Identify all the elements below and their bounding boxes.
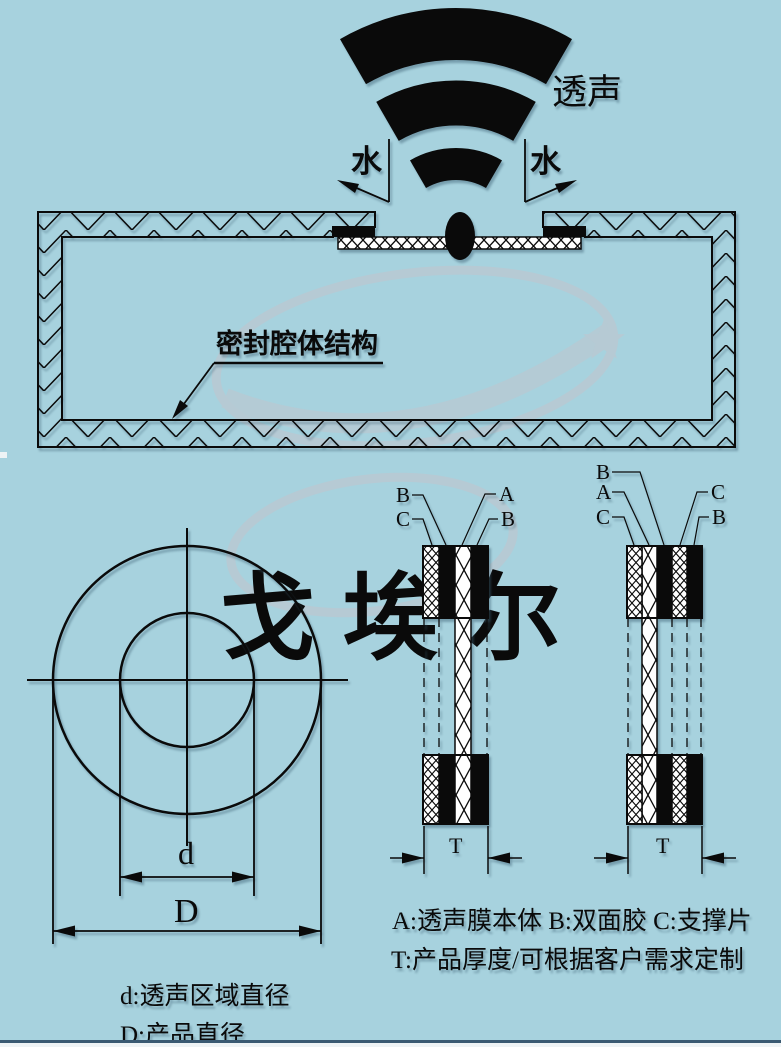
stack2-label-A-left: A [596,480,612,504]
product-diagram-page: 戈 埃 尔 透声 水 水 [0,0,781,1047]
stack2-bottom-adhesive-r [687,755,702,824]
sound-arc-inner [418,164,494,174]
water-annotation-right: 水 [525,139,577,202]
water-annotation-left: 水 [337,139,389,202]
layer-stack-1: B C A B T [390,482,522,874]
stack2-thickness-label: T [656,833,670,858]
stack1-top-adhesive-l [439,546,455,618]
water-label-left: 水 [351,144,383,179]
stack1-bottom-adhesive-l [439,755,455,824]
desc-acoustic-diameter: d:透声区域直径 [120,982,289,1010]
left-edge-tick [0,452,7,458]
dim-label-D: D [174,893,199,930]
cavity-label: 密封腔体结构 [216,328,378,359]
layer-stack-2: B A C C B T [594,460,736,874]
stack1-bottom-adhesive-r [471,755,488,824]
adhesive-pad-right [543,227,585,237]
legend-thickness-line: T:产品厚度/可根据客户需求定制 [391,946,744,974]
stack2-top-adhesive-r [687,546,702,618]
water-arrowhead-left [337,180,359,193]
stack1-thickness-label: T [449,833,463,858]
stack1-label-A-right: A [499,482,515,506]
sound-wave-icon [353,34,559,174]
page-bottom-strip [0,1043,781,1047]
page-bottom-divider [0,1040,781,1043]
stack1-label-B-left: B [396,483,410,507]
stack1-top-adhesive-r [471,546,488,618]
brand-watermark: 戈 埃 尔 [206,249,625,672]
stack2-label-C-right: C [711,480,725,504]
sealed-cavity-section [38,212,735,447]
water-arrowhead-right [555,180,577,193]
stack2-top-adhesive-m [657,546,672,618]
stack2-label-B-right: B [712,505,726,529]
dim-label-d: d [178,835,194,871]
legend-layers-line: A:透声膜本体 B:双面胶 C:支撑片 [392,907,752,935]
stack1-label-C-left: C [396,507,410,531]
sound-source-dot [445,212,475,260]
diagram-canvas: 戈 埃 尔 透声 水 水 [0,0,781,1047]
watermark-brand-text: 戈 埃 尔 [220,566,563,672]
adhesive-pad-left [333,227,375,237]
sound-arc-middle [388,103,525,121]
stack2-bottom-adhesive-m [657,755,672,824]
sound-transmission-label: 透声 [552,73,622,112]
stack2-label-C-left: C [596,505,610,529]
sound-arc-outer [353,34,559,62]
stack1-label-B-right: B [501,507,515,531]
water-label-right: 水 [530,144,562,179]
